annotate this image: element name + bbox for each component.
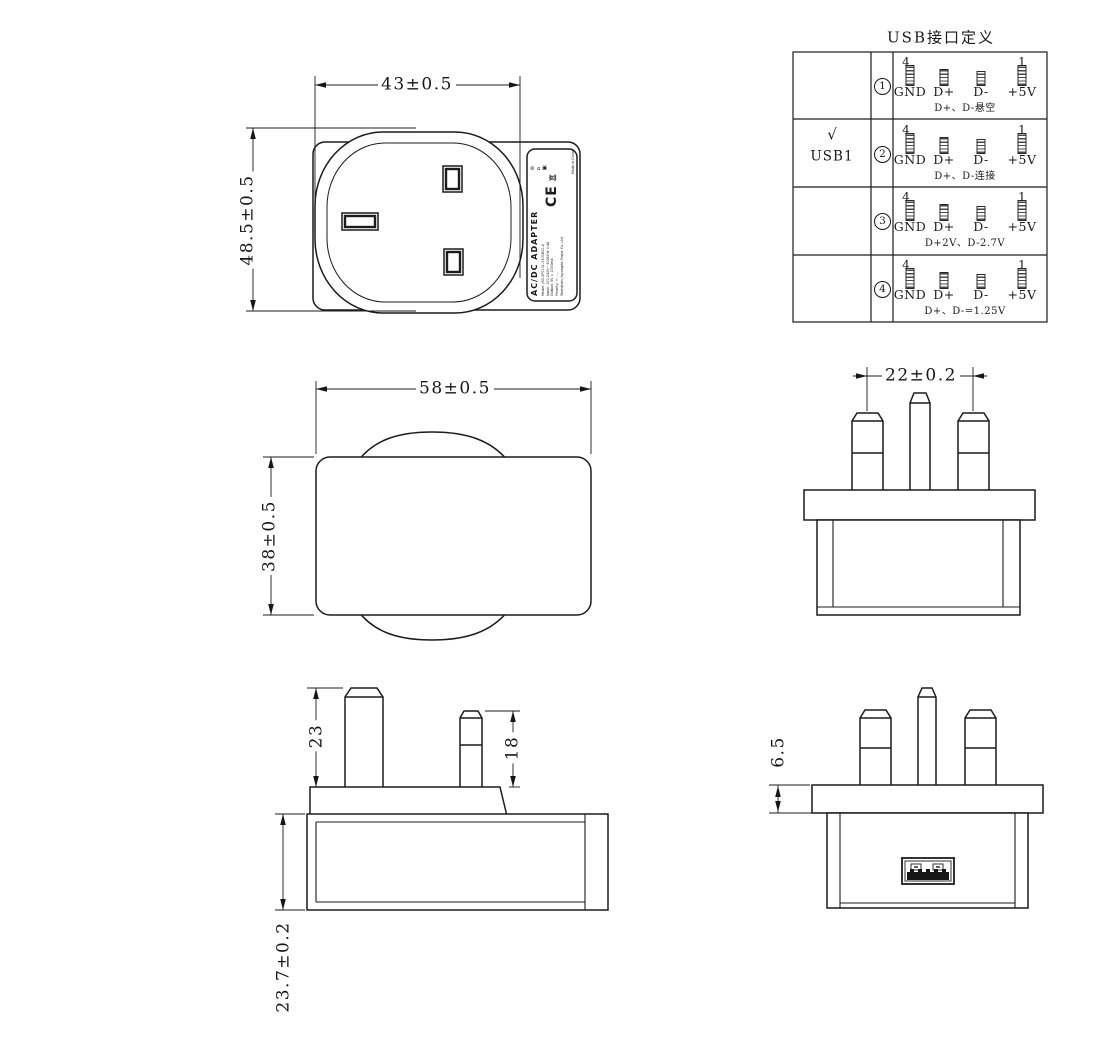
row-note: D+、D-悬空	[934, 104, 995, 114]
dim-body-height: 23.7±0.2	[276, 918, 293, 1015]
pin-label-gnd: GND	[894, 154, 926, 167]
row-index-badge: 2	[874, 146, 891, 163]
usb-table-row-3: 3 4 1 GND D+ D- +5V D+2V、D-2.7V	[793, 187, 1047, 255]
dim-flange-thickness: 6.5	[771, 733, 788, 771]
usb-table-row-4: 4 4 1 GND D+ D- +5V D+、D-=1.25V	[793, 255, 1047, 323]
product-label-text: AC/DC ADAPTER Model: JB0-5P0101-0500B00-…	[527, 207, 577, 300]
view-front-usb	[812, 688, 1043, 908]
product-label: AC/DC ADAPTER Model: JB0-5P0101-0500B00-…	[527, 148, 577, 300]
selected-port-label: USB1	[810, 150, 853, 164]
pin-label-dminus: D-	[973, 86, 988, 99]
pin-label-dminus: D-	[973, 289, 988, 302]
pin-label-5v: +5V	[1008, 86, 1037, 99]
technical-drawing-canvas: 43±0.5 48.5±0.5 58±0.5 38±0.5 22±0.2 23 …	[0, 0, 1100, 1044]
row-note: D+、D-连接	[934, 172, 995, 182]
usb-table-row-2: √ USB1 2 4 1 GND D+ D- +5V D+、D-连接	[793, 120, 1047, 188]
pin-label-dplus: D+	[933, 154, 955, 167]
pin-label-dminus: D-	[973, 221, 988, 234]
pin-label-dplus: D+	[933, 86, 955, 99]
pin-label-5v: +5V	[1008, 289, 1037, 302]
usb-table-row-1: 1 4 1 GND D+ D- +5V D+、D-悬空	[793, 52, 1047, 120]
view-side	[307, 688, 608, 910]
row-note: D+2V、D-2.7V	[925, 239, 1005, 249]
pin-label-gnd: GND	[894, 221, 926, 234]
row-index-badge: 3	[874, 213, 891, 230]
dim-top-width: 58±0.5	[416, 381, 494, 398]
pin-label-dminus: D-	[973, 154, 988, 167]
view-top	[316, 432, 591, 640]
product-name: AC/DC ADAPTER	[530, 207, 539, 296]
dim-line-pin-length: 18	[505, 733, 522, 764]
row-note: D+、D-=1.25V	[924, 307, 1005, 317]
row-index-badge: 4	[874, 281, 891, 298]
selected-checkmark: √	[827, 128, 837, 143]
label-maker-line: Shenzhen Jinyongda Power Co.,Ltd	[560, 207, 565, 296]
pin-label-dplus: D+	[933, 221, 955, 234]
made-in-text: Made in China	[571, 150, 575, 174]
pin-label-gnd: GND	[894, 289, 926, 302]
label-cert-marks: CE ⊚ ⌂ ▣	[527, 148, 577, 207]
view-rear-pins	[804, 393, 1035, 615]
weee-bin-icon	[544, 174, 561, 183]
ce-mark: CE	[544, 185, 560, 207]
pin-label-dplus: D+	[933, 289, 955, 302]
pin-label-gnd: GND	[894, 86, 926, 99]
row-index-badge: 1	[874, 78, 891, 95]
dim-earth-pin-length: 23	[309, 721, 326, 752]
dim-pin-spacing: 22±0.2	[882, 368, 960, 385]
dim-front-height: 48.5±0.5	[240, 171, 257, 268]
dim-front-width: 43±0.5	[378, 77, 456, 94]
usb-table-title: USB接口定义	[887, 27, 995, 48]
pin-label-5v: +5V	[1008, 221, 1037, 234]
pin-label-5v: +5V	[1008, 154, 1037, 167]
cert-icons: ⊚ ⌂ ▣	[530, 158, 548, 171]
dim-top-depth: 38±0.5	[262, 497, 279, 575]
